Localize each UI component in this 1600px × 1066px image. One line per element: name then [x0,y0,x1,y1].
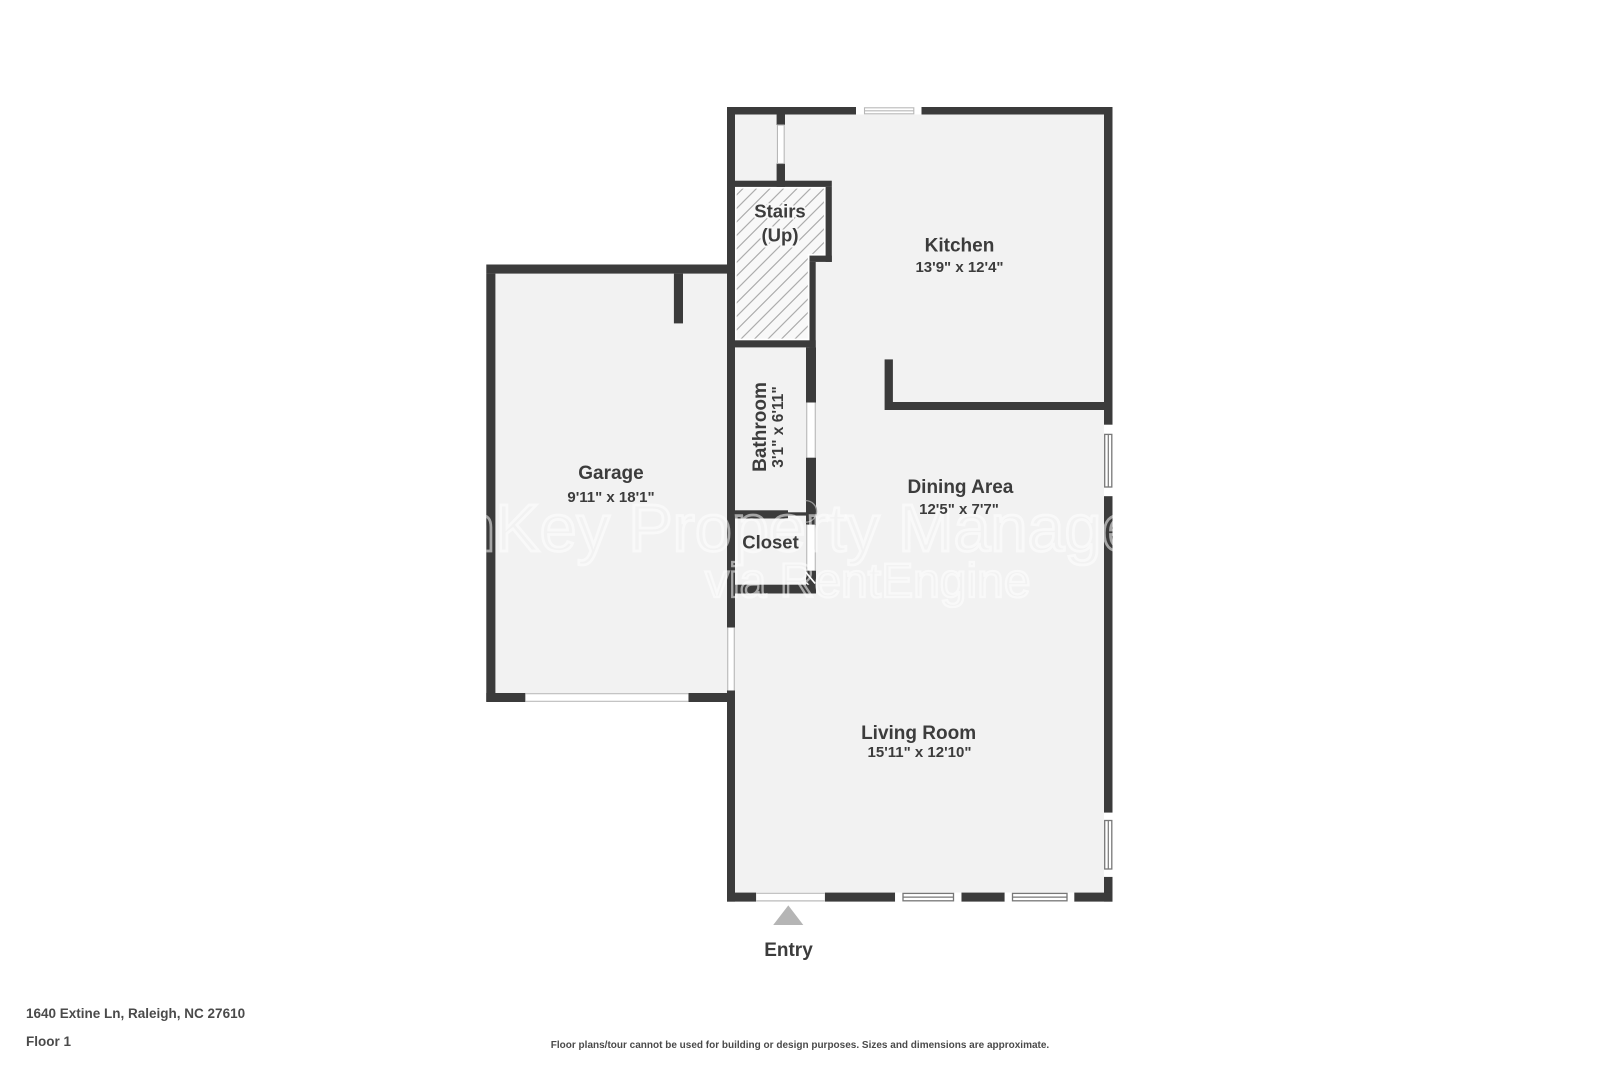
svg-text:Dining Area: Dining Area [907,477,1013,498]
svg-text:via RentEngine: via RentEngine [705,555,1031,608]
svg-text:Stairs: Stairs [754,201,805,222]
svg-text:Floor plans/tour cannot be use: Floor plans/tour cannot be used for buil… [551,1040,1050,1051]
svg-text:(Up): (Up) [762,225,799,246]
svg-text:Floor 1: Floor 1 [26,1034,71,1049]
svg-text:12'5" x 7'7": 12'5" x 7'7" [919,501,999,518]
svg-text:Garage: Garage [578,463,643,484]
svg-text:Bathroom: Bathroom [750,382,771,472]
svg-text:1640 Extine Ln, Raleigh, NC 27: 1640 Extine Ln, Raleigh, NC 27610 [26,1006,245,1021]
svg-text:Living Room: Living Room [861,723,976,744]
svg-text:Entry: Entry [764,940,813,961]
svg-text:15'11" x 12'10": 15'11" x 12'10" [868,744,972,761]
svg-text:Closet: Closet [742,532,799,553]
svg-text:Kitchen: Kitchen [925,236,995,257]
svg-text:9'11" x 18'1": 9'11" x 18'1" [567,489,654,506]
svg-text:13'9" x 12'4": 13'9" x 12'4" [915,259,1003,276]
svg-text:3'1" x 6'11": 3'1" x 6'11" [770,386,787,468]
